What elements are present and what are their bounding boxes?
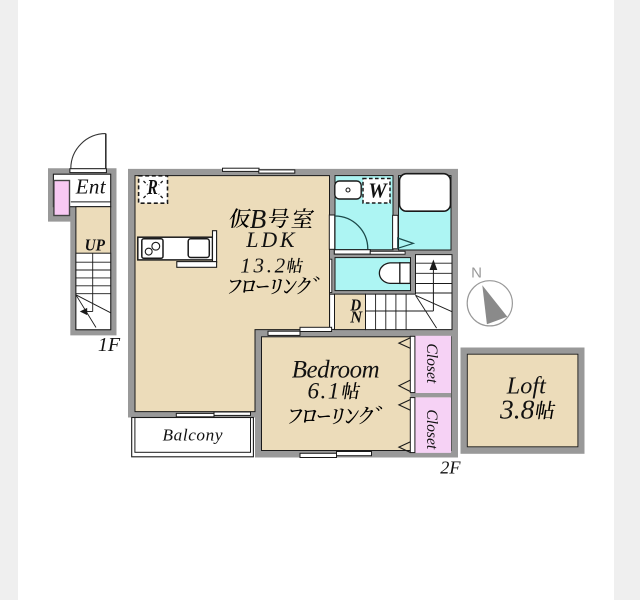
svg-text:W: W xyxy=(368,180,388,202)
svg-text:2F: 2F xyxy=(440,458,461,478)
svg-text:N: N xyxy=(349,308,363,327)
svg-text:1F: 1F xyxy=(98,334,121,356)
svg-text:6.1: 6.1 xyxy=(308,378,341,404)
svg-text:Closet: Closet xyxy=(423,343,440,384)
svg-text:Ent: Ent xyxy=(75,174,107,198)
svg-text:LDK: LDK xyxy=(245,227,297,252)
svg-text:UP: UP xyxy=(85,236,106,255)
svg-text:13.2: 13.2 xyxy=(240,253,288,277)
svg-text:N: N xyxy=(471,264,482,281)
svg-text:R: R xyxy=(146,175,157,199)
svg-text:Closet: Closet xyxy=(423,409,440,450)
svg-text:Balcony: Balcony xyxy=(163,425,224,444)
svg-text:3.8: 3.8 xyxy=(499,393,535,424)
